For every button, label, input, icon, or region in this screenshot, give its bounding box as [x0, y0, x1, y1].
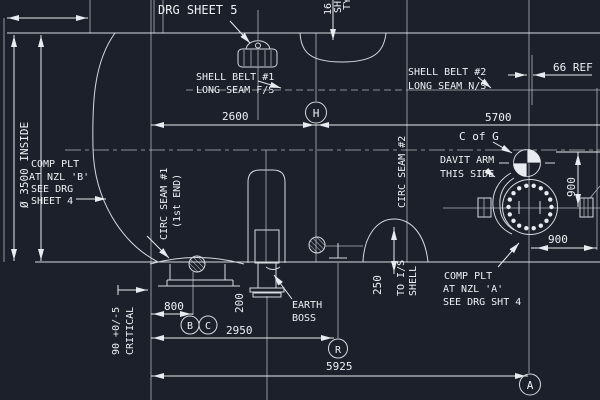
dim-200: 200: [233, 293, 246, 313]
svg-text:C: C: [205, 321, 211, 332]
drg-sheet5-note: DRG SHEET 5: [158, 3, 237, 17]
comp-plt-b-line2: AT NZL 'B': [29, 172, 89, 183]
annotation-text: DRG SHEET 5 SHELL BELT #1 LONG SEAM F/S …: [18, 0, 593, 373]
svg-text:H: H: [313, 107, 320, 120]
circ-seam1-line1: CIRC SEAM #1: [159, 168, 170, 240]
vessel-elevation-drawing: DRG SHEET 5 SHELL BELT #1 LONG SEAM F/S …: [0, 0, 600, 400]
circ-seam1-line2: (1st END): [172, 174, 183, 228]
comp-plt-b-line1: COMP PLT: [31, 159, 79, 170]
marker-h: H: [306, 102, 327, 123]
internal-fitting: [238, 10, 277, 120]
comp-plt-a-line1: COMP PLT: [444, 271, 492, 282]
standpipe: [248, 150, 285, 297]
circ-seam2-note: CIRC SEAM #2: [397, 136, 408, 208]
earth-boss-line2: BOSS: [292, 313, 316, 324]
dim-5925: 5925: [326, 360, 353, 373]
dim-90: 90 +0/-5: [111, 307, 122, 355]
cofg-note: C of G: [459, 130, 499, 143]
center-of-gravity-symbol: [499, 150, 555, 177]
dim-5700: 5700: [485, 111, 512, 124]
marker-a: A: [520, 374, 541, 395]
hatched-nozzle: [309, 237, 363, 253]
earth-boss-geometry: [266, 267, 280, 270]
dim-800: 800: [164, 300, 184, 313]
svg-text:R: R: [335, 345, 342, 356]
internal-dome: [363, 219, 428, 262]
cofg-leader: [493, 142, 512, 153]
to-is-shell-line2: SHELL: [408, 266, 419, 296]
comp-plt-a-line3: SEE DRG SHT 4: [443, 297, 521, 308]
earth-boss-line1: EARTH: [292, 300, 322, 311]
cad-viewport[interactable]: DRG SHEET 5 SHELL BELT #1 LONG SEAM F/S …: [0, 0, 600, 400]
comp-plt-b-line3: SEE DRG: [31, 184, 73, 195]
dim-2600: 2600: [222, 110, 249, 123]
shell-belt1-line2: LONG SEAM F/S: [196, 85, 274, 96]
svg-text:B: B: [187, 321, 193, 332]
comp-plt-b-line4: SHEET 4: [31, 196, 73, 207]
dim-2950: 2950: [226, 324, 253, 337]
critical-note: CRITICAL: [125, 307, 136, 355]
to-is-shell-line1: TO I/S: [396, 260, 407, 296]
marker-c: C: [199, 316, 217, 334]
svg-text:A: A: [527, 379, 534, 392]
marker-b: B: [181, 316, 199, 334]
dished-head: [93, 33, 158, 262]
saddle-support: [150, 256, 244, 286]
davit-line2: THIS SIDE: [440, 169, 494, 180]
shell-belt2-line1: SHELL BELT #2: [408, 67, 486, 78]
bolt-holes: [506, 184, 553, 231]
marker-r: R: [329, 339, 348, 358]
top-trough: [300, 33, 386, 62]
dim-900-vert: 900: [565, 177, 578, 197]
dim-66ref: 66 REF: [553, 61, 593, 74]
drg-sheet5-leader: [230, 21, 250, 43]
vessel-geometry: [7, 10, 600, 297]
thk-note-line3: TYP: [342, 0, 353, 10]
dim-250: 250: [371, 275, 384, 295]
earth-boss-leader: [274, 275, 292, 299]
dim-dia-inside: Ø 3500 INSIDE: [18, 122, 31, 208]
comp-plt-a-line2: AT NZL 'A': [443, 284, 503, 295]
nozzle-markers: H B C R A: [181, 102, 541, 395]
davit-line1: DAVIT ARM: [440, 155, 494, 166]
shell-belt2-line2: LONG SEAM N/S: [408, 81, 486, 92]
comp-plt-a-leader: [498, 243, 519, 267]
dim-900-horiz: 900: [548, 233, 568, 246]
shell-belt1-line1: SHELL BELT #1: [196, 72, 274, 83]
